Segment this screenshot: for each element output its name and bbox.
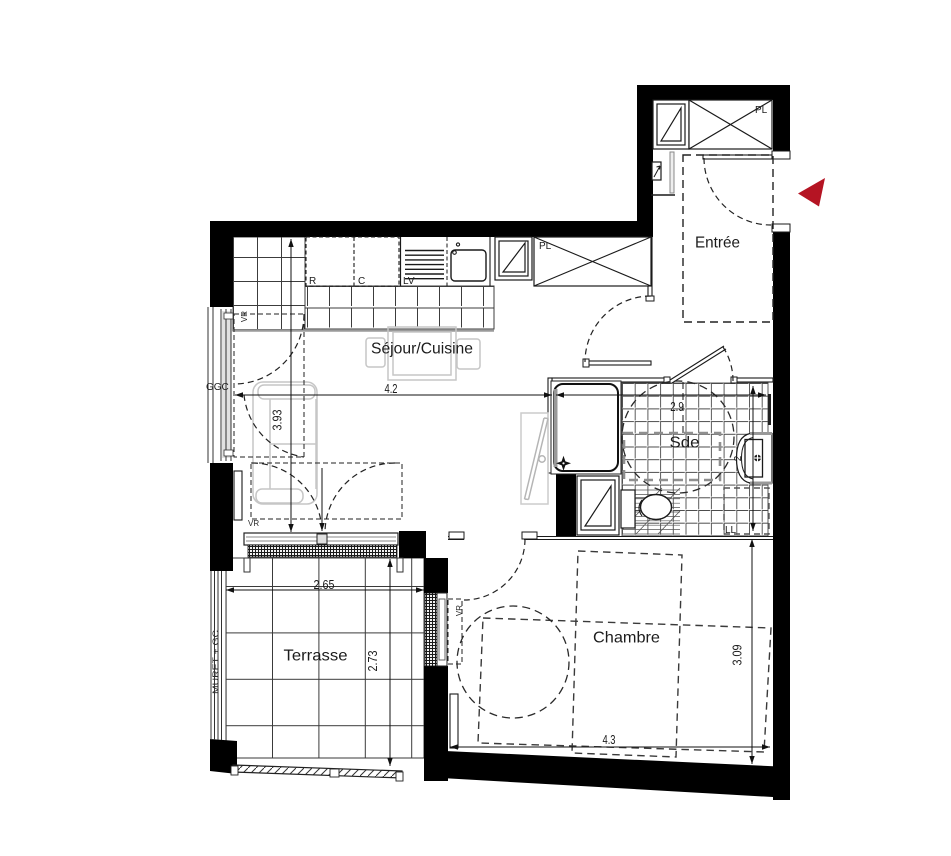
svg-text:GGC: GGC [206, 382, 229, 393]
svg-text:MURET + GC: MURET + GC [212, 630, 221, 694]
svg-text:LL: LL [725, 525, 737, 536]
svg-text:VR: VR [455, 605, 464, 616]
svg-text:C: C [358, 276, 365, 287]
svg-text:2.9: 2.9 [670, 400, 684, 414]
svg-text:Terrasse: Terrasse [284, 648, 348, 665]
svg-text:LV: LV [403, 276, 415, 287]
svg-text:R: R [309, 276, 316, 287]
svg-text:4.2: 4.2 [385, 382, 398, 396]
svg-text:Chambre: Chambre [593, 630, 660, 647]
svg-text:Entrée: Entrée [695, 235, 740, 252]
svg-text:VR: VR [240, 311, 249, 322]
svg-text:3.09: 3.09 [731, 644, 745, 665]
svg-text:3.93: 3.93 [271, 409, 285, 430]
svg-text:PL: PL [755, 105, 768, 116]
svg-text:Séjour/Cuisine: Séjour/Cuisine [371, 341, 473, 358]
svg-text:Sde: Sde [670, 435, 700, 452]
svg-text:4.3: 4.3 [603, 733, 616, 747]
svg-text:2.65: 2.65 [314, 578, 335, 592]
svg-text:2.73: 2.73 [366, 650, 380, 671]
svg-text:VR: VR [248, 519, 259, 528]
svg-text:2: 2 [733, 455, 744, 461]
svg-text:PL: PL [539, 241, 552, 252]
